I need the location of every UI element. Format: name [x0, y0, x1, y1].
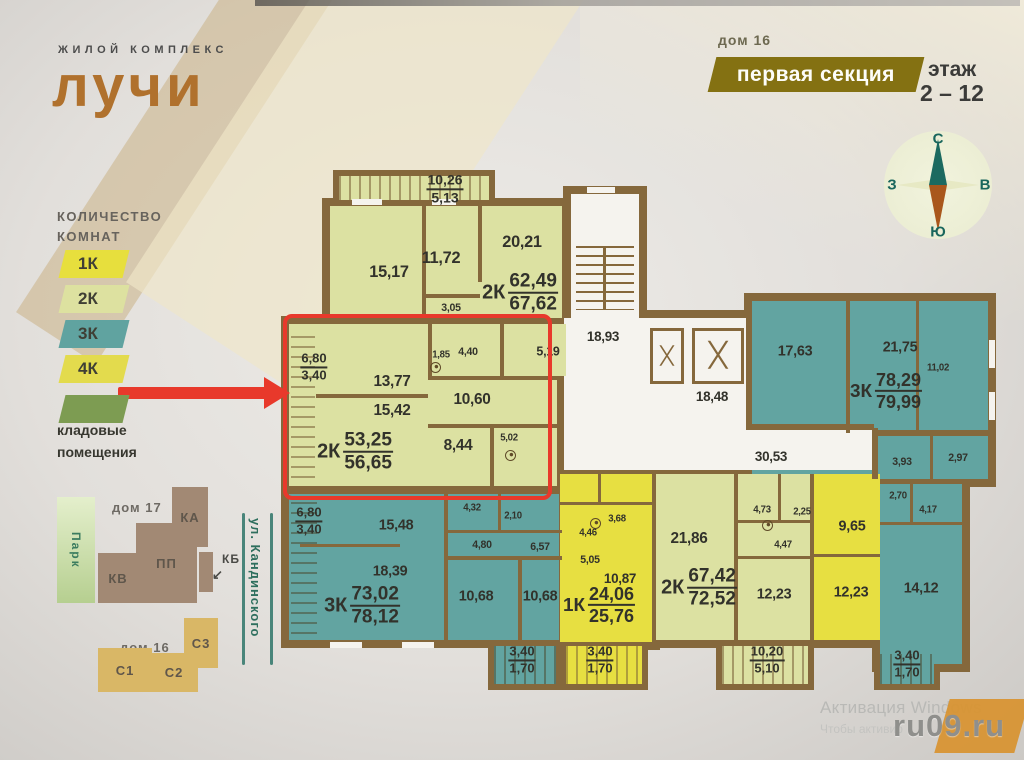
- sitemap-block-label: КВ: [108, 571, 127, 586]
- kb-label: КБ: [222, 552, 240, 566]
- sitemap-block-ПП: ПП: [136, 523, 197, 603]
- sitemap-block-С2: С2: [150, 653, 198, 692]
- sitemap-block-label: С2: [165, 665, 184, 680]
- windows-activation-subtext: Чтобы активир: [820, 722, 903, 736]
- kb-arrow-icon: [212, 566, 223, 584]
- sitemap-block-label: С1: [116, 663, 135, 678]
- sitemap-block: [199, 552, 213, 592]
- street-label: ул. Кандинского: [248, 518, 263, 638]
- brochure-photo: { "header": { "logo_top": "ЖИЛОЙ КОМПЛЕК…: [0, 0, 1024, 760]
- street-line: [270, 513, 273, 665]
- sitemap-block-С1: С1: [98, 648, 152, 692]
- sitemap-block-label: С3: [192, 636, 211, 651]
- sitemap-block-label: ПП: [156, 556, 177, 571]
- street-line: [242, 513, 245, 665]
- site-watermark: ru09.ru: [893, 708, 1005, 744]
- sitemap-block-КВ: КВ: [98, 553, 138, 603]
- sitemap-blocks: КАКВППС3С1С2: [0, 0, 1024, 760]
